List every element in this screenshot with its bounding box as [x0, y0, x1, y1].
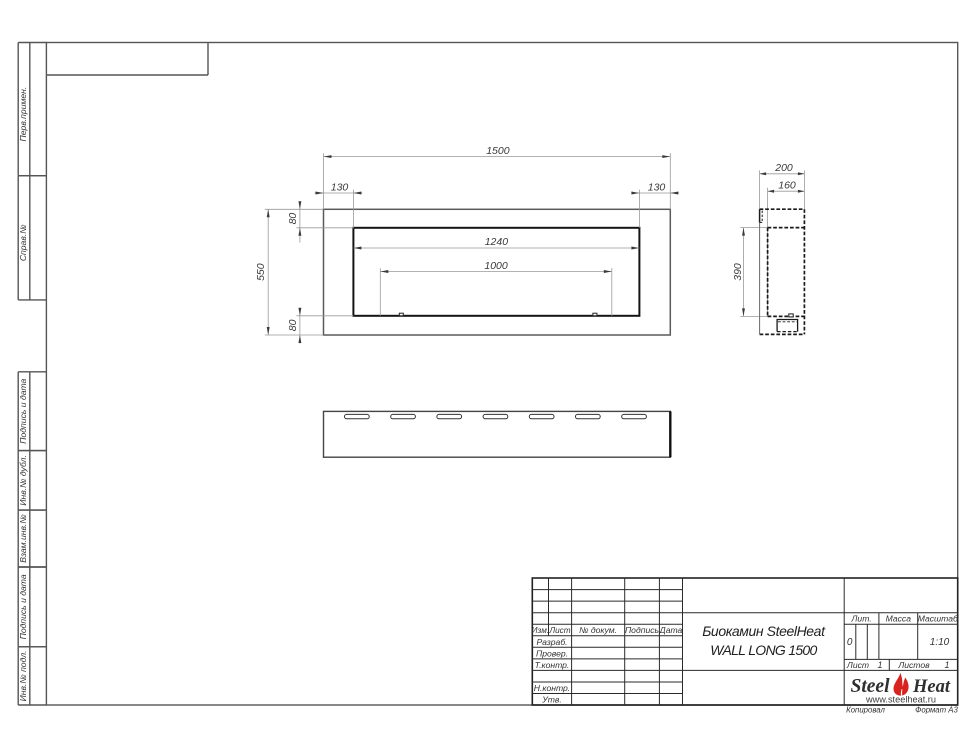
svg-text:130: 130 — [648, 181, 666, 193]
svg-text:Разраб.: Разраб. — [536, 637, 567, 647]
svg-text:Копировал: Копировал — [846, 706, 885, 715]
svg-text:Подпись: Подпись — [625, 625, 660, 635]
svg-text:Масса: Масса — [886, 614, 912, 624]
svg-text:Масштаб: Масштаб — [918, 614, 959, 624]
svg-text:Формат А3: Формат А3 — [915, 706, 958, 715]
svg-text:Перв.примен.: Перв.примен. — [18, 87, 28, 142]
svg-text:Подпись и дата: Подпись и дата — [18, 574, 28, 639]
svg-text:Лист: Лист — [548, 626, 570, 635]
svg-text:200: 200 — [774, 162, 793, 174]
svg-text:0: 0 — [847, 637, 853, 648]
svg-text:550: 550 — [255, 263, 267, 281]
svg-text:1000: 1000 — [484, 260, 508, 272]
svg-text:160: 160 — [778, 179, 796, 191]
svg-text:Лит.: Лит. — [851, 614, 872, 624]
svg-text:Провер.: Провер. — [536, 648, 568, 658]
svg-text:www.steelheat.ru: www.steelheat.ru — [865, 695, 936, 705]
svg-text:80: 80 — [287, 213, 299, 225]
svg-text:WALL LONG 1500: WALL LONG 1500 — [710, 642, 817, 658]
svg-text:Изм.: Изм. — [532, 626, 549, 635]
svg-text:1:10: 1:10 — [930, 637, 950, 648]
svg-text:Справ.№: Справ.№ — [18, 224, 28, 261]
svg-text:390: 390 — [732, 263, 744, 281]
svg-text:Дата: Дата — [659, 625, 683, 635]
svg-text:1240: 1240 — [485, 236, 509, 248]
svg-text:1: 1 — [877, 660, 882, 670]
svg-text:Инв.№ подл.: Инв.№ подл. — [18, 650, 28, 701]
svg-text:80: 80 — [287, 319, 299, 331]
svg-text:Подпись и дата: Подпись и дата — [18, 378, 28, 443]
svg-text:Инв.№ дубл.: Инв.№ дубл. — [18, 455, 28, 505]
svg-text:Лист: Лист — [846, 660, 869, 670]
svg-text:130: 130 — [331, 181, 349, 193]
svg-text:Взам.инв.№: Взам.инв.№ — [18, 514, 28, 562]
svg-text:Биокамин SteelHeat: Биокамин SteelHeat — [702, 623, 826, 639]
svg-text:Н.контр.: Н.контр. — [534, 683, 570, 693]
svg-text:№ докум.: № докум. — [579, 625, 617, 635]
svg-text:1: 1 — [944, 660, 949, 670]
svg-text:1500: 1500 — [486, 145, 510, 157]
svg-text:Т.контр.: Т.контр. — [535, 660, 570, 670]
svg-text:Листов: Листов — [897, 660, 930, 670]
svg-text:Утв.: Утв. — [541, 695, 562, 705]
